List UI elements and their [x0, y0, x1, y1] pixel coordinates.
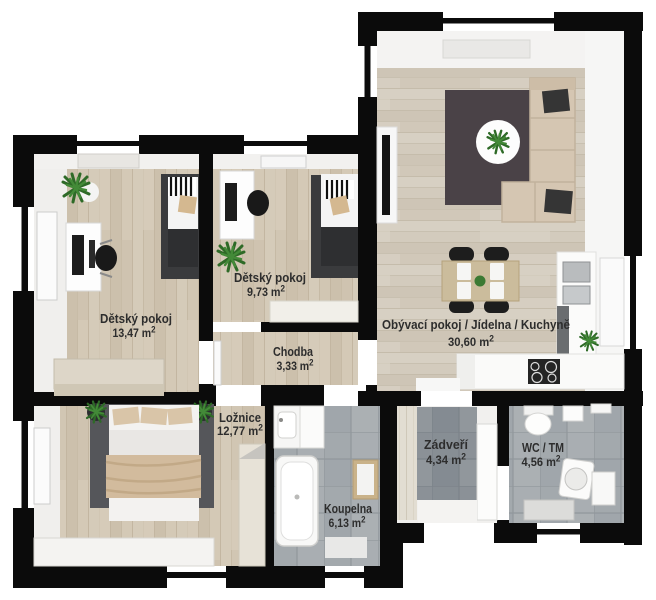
svg-text:12,77 m2: 12,77 m2 — [217, 423, 263, 439]
svg-text:Dětský pokoj: Dětský pokoj — [234, 271, 306, 285]
svg-text:Dětský pokoj: Dětský pokoj — [100, 312, 172, 326]
svg-text:6,13 m2: 6,13 m2 — [329, 515, 366, 531]
svg-text:Zádveří: Zádveří — [424, 438, 469, 452]
svg-text:13,47 m2: 13,47 m2 — [113, 325, 156, 341]
svg-text:30,60 m2: 30,60 m2 — [448, 334, 494, 350]
svg-text:4,56 m2: 4,56 m2 — [522, 454, 561, 470]
svg-text:Obývací pokoj / Jídelna / Kuch: Obývací pokoj / Jídelna / Kuchyně — [382, 317, 570, 332]
svg-text:9,73 m2: 9,73 m2 — [247, 284, 285, 300]
svg-text:Chodba: Chodba — [273, 345, 314, 359]
svg-text:Koupelna: Koupelna — [324, 502, 373, 516]
svg-text:Ložnice: Ložnice — [219, 411, 261, 425]
svg-text:3,33 m2: 3,33 m2 — [277, 358, 314, 374]
svg-text:4,34 m2: 4,34 m2 — [426, 452, 466, 468]
